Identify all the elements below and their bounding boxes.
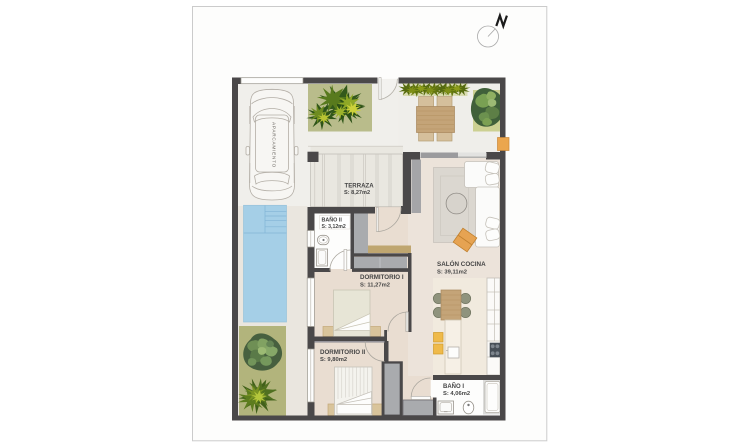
svg-text:S: 11,27m2: S: 11,27m2 bbox=[360, 283, 390, 289]
svg-text:DORMITORIO I: DORMITORIO I bbox=[360, 274, 404, 281]
svg-text:APARCAMIENTO: APARCAMIENTO bbox=[272, 122, 277, 168]
svg-text:BAÑO II: BAÑO II bbox=[322, 217, 343, 224]
svg-text:SALÓN COCINA: SALÓN COCINA bbox=[437, 259, 486, 268]
svg-text:S: 9,80m2: S: 9,80m2 bbox=[320, 357, 347, 363]
svg-text:S: 39,11m2: S: 39,11m2 bbox=[437, 270, 467, 276]
svg-text:BAÑO I: BAÑO I bbox=[443, 383, 464, 390]
svg-text:S: 8,27m2: S: 8,27m2 bbox=[344, 190, 370, 196]
svg-text:S: 3,12m2: S: 3,12m2 bbox=[322, 224, 346, 230]
svg-text:S: 4,06m2: S: 4,06m2 bbox=[443, 391, 470, 397]
svg-text:DORMITORIO II: DORMITORIO II bbox=[320, 349, 366, 356]
svg-text:TERRAZA: TERRAZA bbox=[345, 183, 375, 190]
